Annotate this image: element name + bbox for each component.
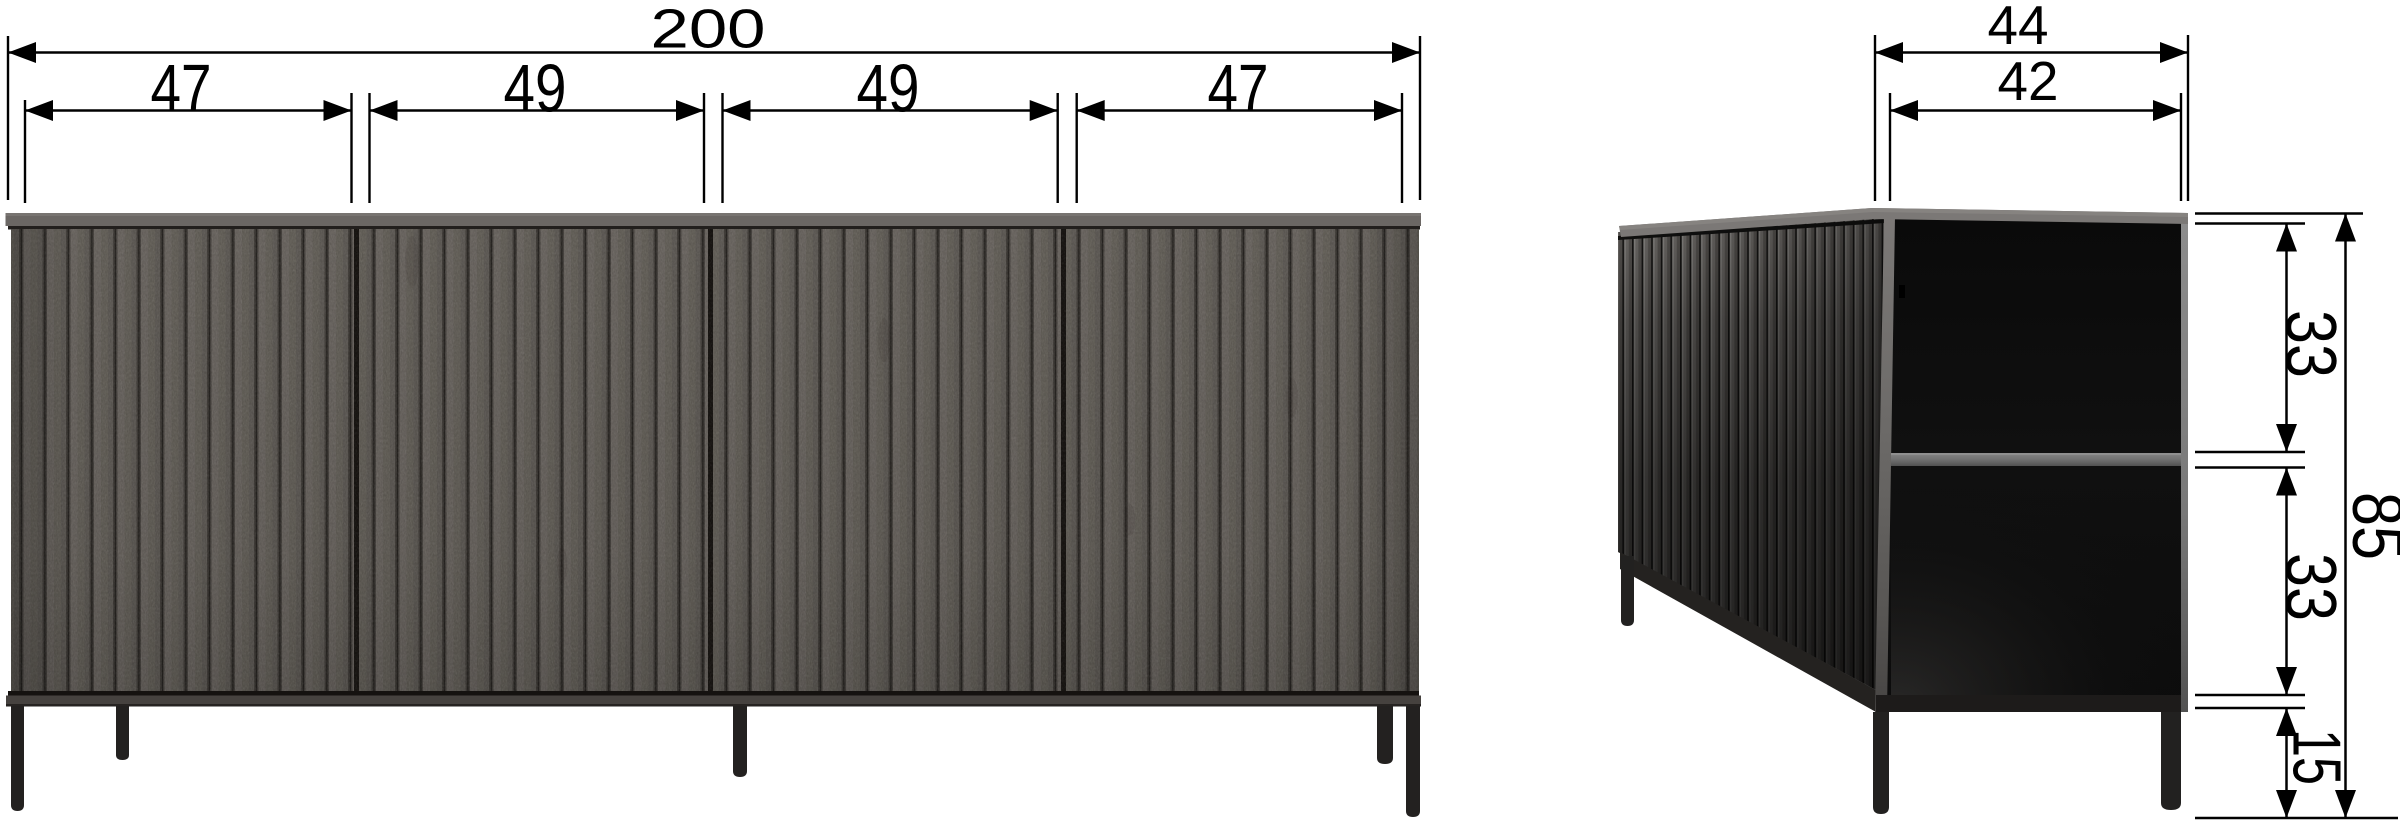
svg-text:47: 47 <box>1208 51 1269 127</box>
svg-text:33: 33 <box>2271 310 2350 378</box>
svg-text:33: 33 <box>2271 553 2350 621</box>
svg-text:49: 49 <box>504 51 567 127</box>
svg-text:200: 200 <box>651 0 766 60</box>
svg-text:42: 42 <box>1998 50 2059 112</box>
svg-text:44: 44 <box>1988 0 2049 56</box>
svg-text:85: 85 <box>2337 492 2400 560</box>
svg-text:15: 15 <box>2279 729 2355 785</box>
svg-text:49: 49 <box>857 51 920 127</box>
svg-text:47: 47 <box>151 51 212 127</box>
